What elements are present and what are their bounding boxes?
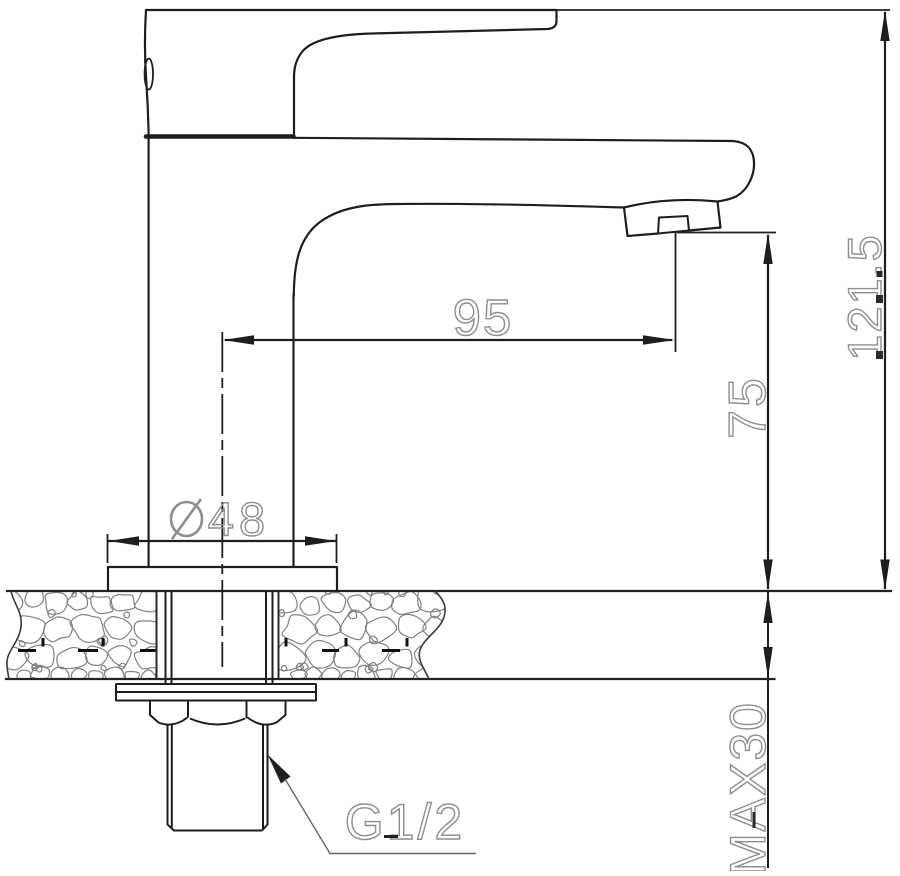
svg-text:G1/2: G1/2 <box>345 794 465 850</box>
svg-text:95: 95 <box>453 289 514 346</box>
svg-text:48: 48 <box>208 493 270 546</box>
svg-text:MAX30: MAX30 <box>720 701 776 871</box>
svg-text:75: 75 <box>719 375 777 439</box>
svg-text:121.5: 121.5 <box>838 233 891 361</box>
